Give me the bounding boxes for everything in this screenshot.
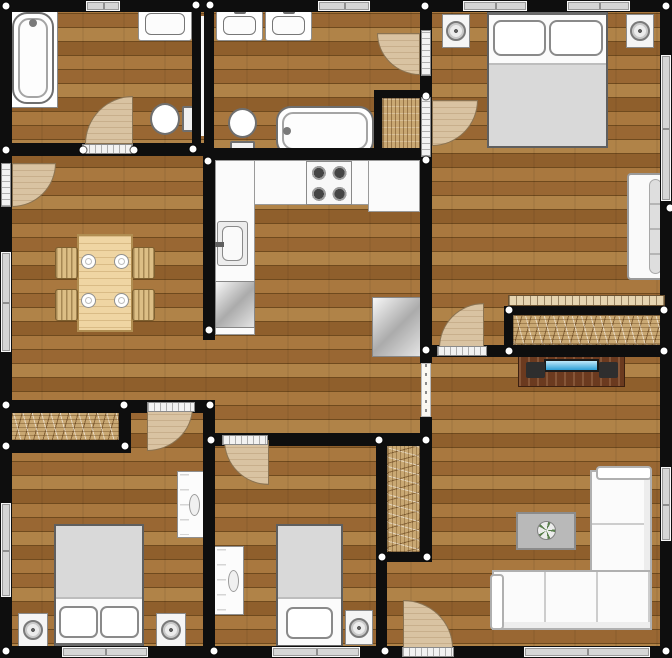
wall-joint-dot [3, 3, 10, 10]
window-living-right [661, 467, 671, 541]
sliding-door-master-closet [508, 295, 665, 306]
master-nightstand-left [442, 14, 470, 48]
closet-ensuite [382, 98, 420, 150]
wall-joint-dot [3, 147, 10, 154]
door-ensuite [377, 33, 420, 75]
wall-bathrooms-divider-west [192, 8, 201, 148]
plate-top-right [114, 254, 129, 269]
door-bedroom1 [147, 407, 193, 451]
door-exterior-living [403, 600, 453, 648]
plate-top-left [81, 254, 96, 269]
wall-joint-dot [3, 402, 10, 409]
kitchen-fridge [372, 297, 421, 357]
threshold-entrance [1, 163, 11, 207]
wall-joint-dot [424, 554, 431, 561]
dining-table [77, 234, 133, 332]
wall-joint-dot [423, 93, 430, 100]
window-living-bottom [524, 647, 650, 657]
wall-joint-dot [211, 648, 218, 655]
wall-joint-dot [207, 402, 214, 409]
window-master-right [661, 55, 671, 201]
bedroom1-bed [54, 524, 144, 648]
wall-joint-dot [122, 443, 129, 450]
wall-joint-dot [121, 402, 128, 409]
closet-hall [387, 443, 420, 552]
wall-joint-dot [206, 327, 213, 334]
wall-joint-dot [663, 3, 670, 10]
living-sofa-arm-left [490, 574, 504, 630]
window-bedroom1-bottom [62, 647, 148, 657]
wall-joint-dot [190, 146, 197, 153]
master-bed [487, 10, 608, 148]
floor-plan [0, 0, 672, 658]
closet-master [513, 315, 665, 345]
dining-chair-top-left [55, 247, 78, 279]
wall-joint-dot [667, 205, 672, 212]
door-master-entry [432, 100, 478, 146]
window-master-top-right [567, 1, 630, 11]
toilet-bathroom1 [150, 101, 194, 137]
bathtub-bathroom1 [12, 12, 54, 104]
dining-chair-bottom-left [55, 289, 78, 321]
plant [537, 521, 556, 540]
plate-bottom-right [114, 293, 129, 308]
plate-bottom-left [81, 293, 96, 308]
door-entrance [12, 163, 56, 207]
wall-joint-dot [80, 147, 87, 154]
wall-joint-dot [376, 437, 383, 444]
sink-ensuite-left [216, 10, 263, 41]
wall-joint-dot [423, 347, 430, 354]
wall-bedroom2-east [376, 433, 387, 658]
wall-joint-dot [379, 554, 386, 561]
window-bedroom2-bottom [272, 647, 360, 657]
tv-stand [518, 354, 625, 387]
master-nightstand-right [626, 14, 654, 48]
passage-kitchen-living [421, 363, 431, 417]
bedroom1-nightstand-right [156, 613, 186, 647]
plumbing-wall-gap [201, 16, 204, 136]
bedroom1-dresser [177, 471, 205, 538]
wall-master-closet-north [504, 306, 672, 315]
kitchen-counter-right [368, 160, 420, 212]
wall-joint-dot [661, 348, 668, 355]
window-dining-left [1, 252, 11, 352]
dining-chair-bottom-right [132, 289, 155, 321]
wall-joint-dot [193, 2, 200, 9]
threshold-bathroom1 [82, 144, 133, 154]
threshold-master-south [437, 346, 487, 356]
wall-joint-dot [661, 307, 668, 314]
threshold-master-entry [421, 97, 431, 157]
bedroom2-nightstand [345, 610, 373, 645]
living-sofa-arm-top [596, 466, 652, 480]
living-sofa-seat [492, 570, 652, 630]
window-bathroom1-top [86, 1, 120, 11]
kitchen-sink [217, 221, 248, 266]
wall-joint-dot [423, 437, 430, 444]
wall-joint-dot [207, 2, 214, 9]
window-bedroom1-left [1, 503, 11, 597]
window-master-top-left [463, 1, 527, 11]
wall-ensuite-closet-west [374, 90, 382, 156]
door-bedroom2 [224, 440, 269, 485]
wall-joint-dot [131, 147, 138, 154]
sink-bathroom1 [138, 7, 192, 41]
threshold-bedroom1 [147, 402, 195, 412]
dining-chair-top-right [132, 247, 155, 279]
wall-joint-dot [3, 443, 10, 450]
closet-bedroom1 [10, 412, 119, 441]
wall-joint-dot [3, 648, 10, 655]
wall-bathrooms-divider-east [204, 8, 214, 148]
wall-joint-dot [423, 157, 430, 164]
window-ensuite-top [318, 1, 370, 11]
kitchen-dishwasher [215, 281, 255, 328]
bedroom2-bed [276, 524, 343, 650]
wall-bedroom1-closet-south [0, 440, 131, 453]
wall-joint-dot [205, 158, 212, 165]
wall-joint-dot [506, 348, 513, 355]
sink-ensuite-right [265, 10, 312, 41]
wall-joint-dot [422, 3, 429, 10]
door-bathroom1 [85, 96, 133, 144]
wall-kitchen-north [203, 148, 432, 160]
bedroom1-nightstand-left [18, 613, 48, 647]
threshold-bedroom2 [222, 435, 268, 445]
threshold-ensuite [421, 30, 431, 76]
door-master-south [439, 303, 484, 348]
wall-joint-dot [208, 437, 215, 444]
wall-joint-dot [663, 648, 670, 655]
threshold-exterior-living [402, 647, 454, 657]
wall-joint-dot [382, 648, 389, 655]
wall-kitchen-west [203, 148, 215, 340]
wall-joint-dot [506, 307, 513, 314]
bedroom2-dresser [214, 546, 244, 615]
kitchen-stove [306, 161, 352, 205]
